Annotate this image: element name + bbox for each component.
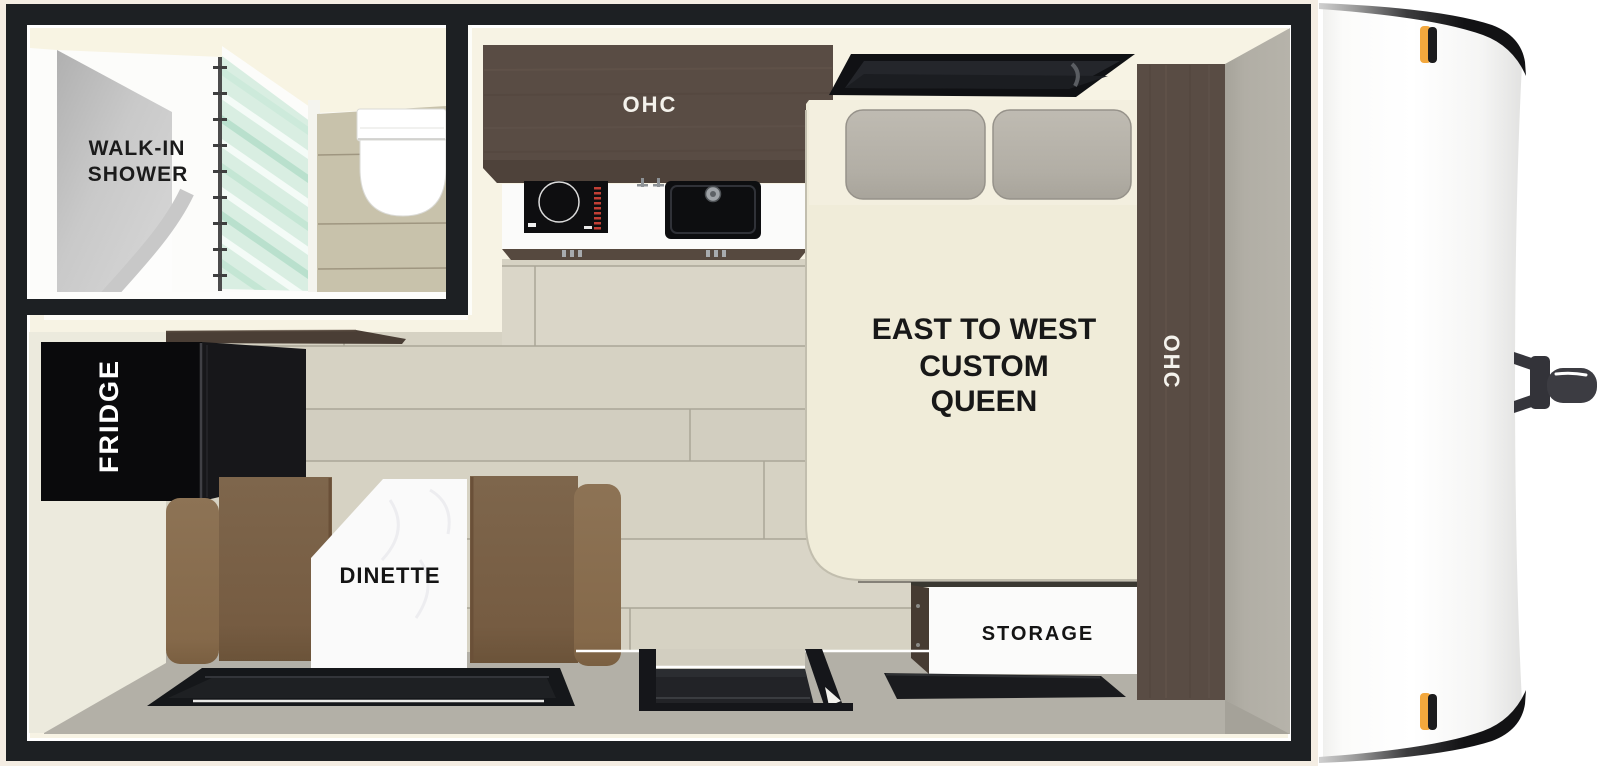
svg-text:EAST TO WEST: EAST TO WEST — [872, 313, 1096, 346]
svg-text:OHC: OHC — [623, 92, 678, 117]
svg-text:QUEEN: QUEEN — [931, 385, 1038, 418]
svg-text:FRIDGE: FRIDGE — [94, 359, 124, 473]
svg-text:CUSTOM: CUSTOM — [919, 350, 1048, 383]
svg-text:OHC: OHC — [1159, 335, 1184, 390]
svg-text:WALK-IN: WALK-IN — [89, 137, 186, 160]
svg-text:DINETTE: DINETTE — [339, 563, 440, 588]
svg-text:STORAGE: STORAGE — [982, 623, 1095, 645]
svg-text:SHOWER: SHOWER — [88, 163, 189, 186]
